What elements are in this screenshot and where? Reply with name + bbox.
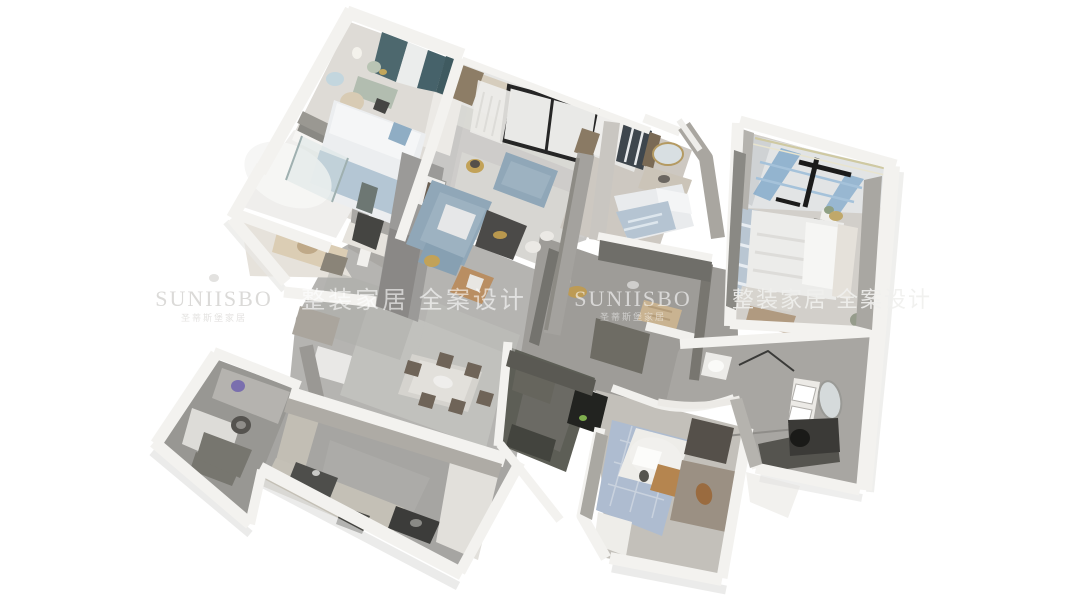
svg-text:圣蒂斯堡家居: 圣蒂斯堡家居 bbox=[181, 312, 247, 323]
svg-text:整装家居 全案设计: 整装家居 全案设计 bbox=[732, 287, 932, 312]
svg-text:整装家居 全案设计: 整装家居 全案设计 bbox=[301, 287, 527, 314]
svg-text:圣蒂斯堡家居: 圣蒂斯堡家居 bbox=[600, 311, 666, 322]
svg-text:SUNIISBO: SUNIISBO bbox=[574, 286, 691, 311]
svg-text:SUNIISBO: SUNIISBO bbox=[155, 286, 272, 311]
